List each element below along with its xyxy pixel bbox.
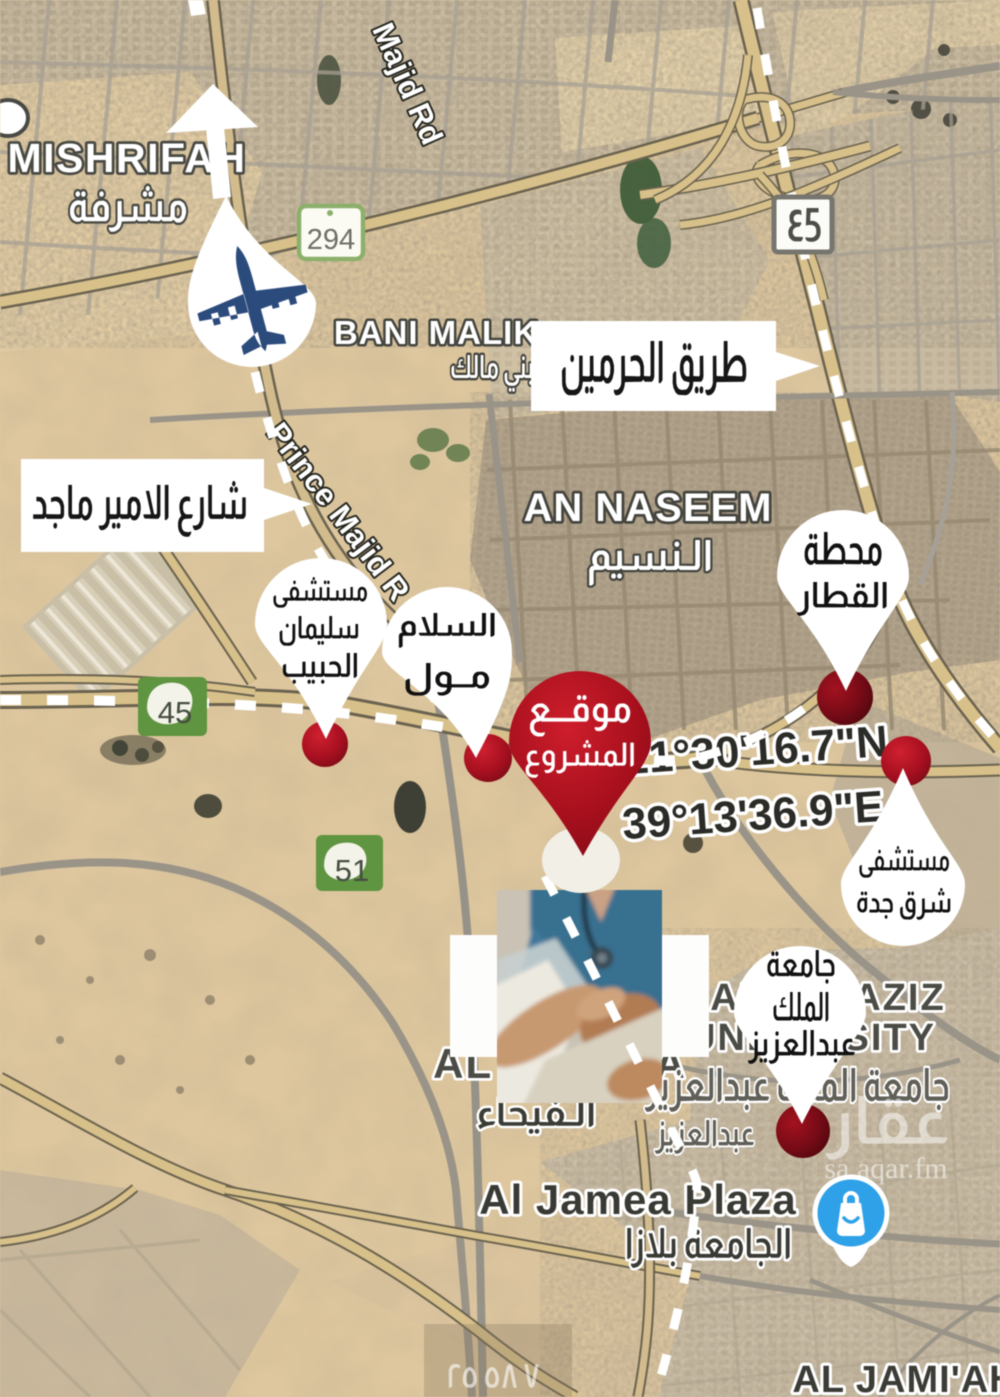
- svg-text:Al Jamea Plaza: Al Jamea Plaza: [479, 1176, 797, 1223]
- svg-text:51: 51: [335, 853, 369, 888]
- svg-text:AL JAMI'AH: AL JAMI'AH: [792, 1359, 1000, 1397]
- svg-text:BANI MALIK: BANI MALIK: [334, 314, 538, 351]
- svg-text:sa.aqar.fm: sa.aqar.fm: [824, 1152, 947, 1185]
- svg-text:AN NASEEM: AN NASEEM: [523, 486, 772, 530]
- svg-text:294: 294: [307, 224, 355, 256]
- svg-text:45: 45: [158, 695, 192, 730]
